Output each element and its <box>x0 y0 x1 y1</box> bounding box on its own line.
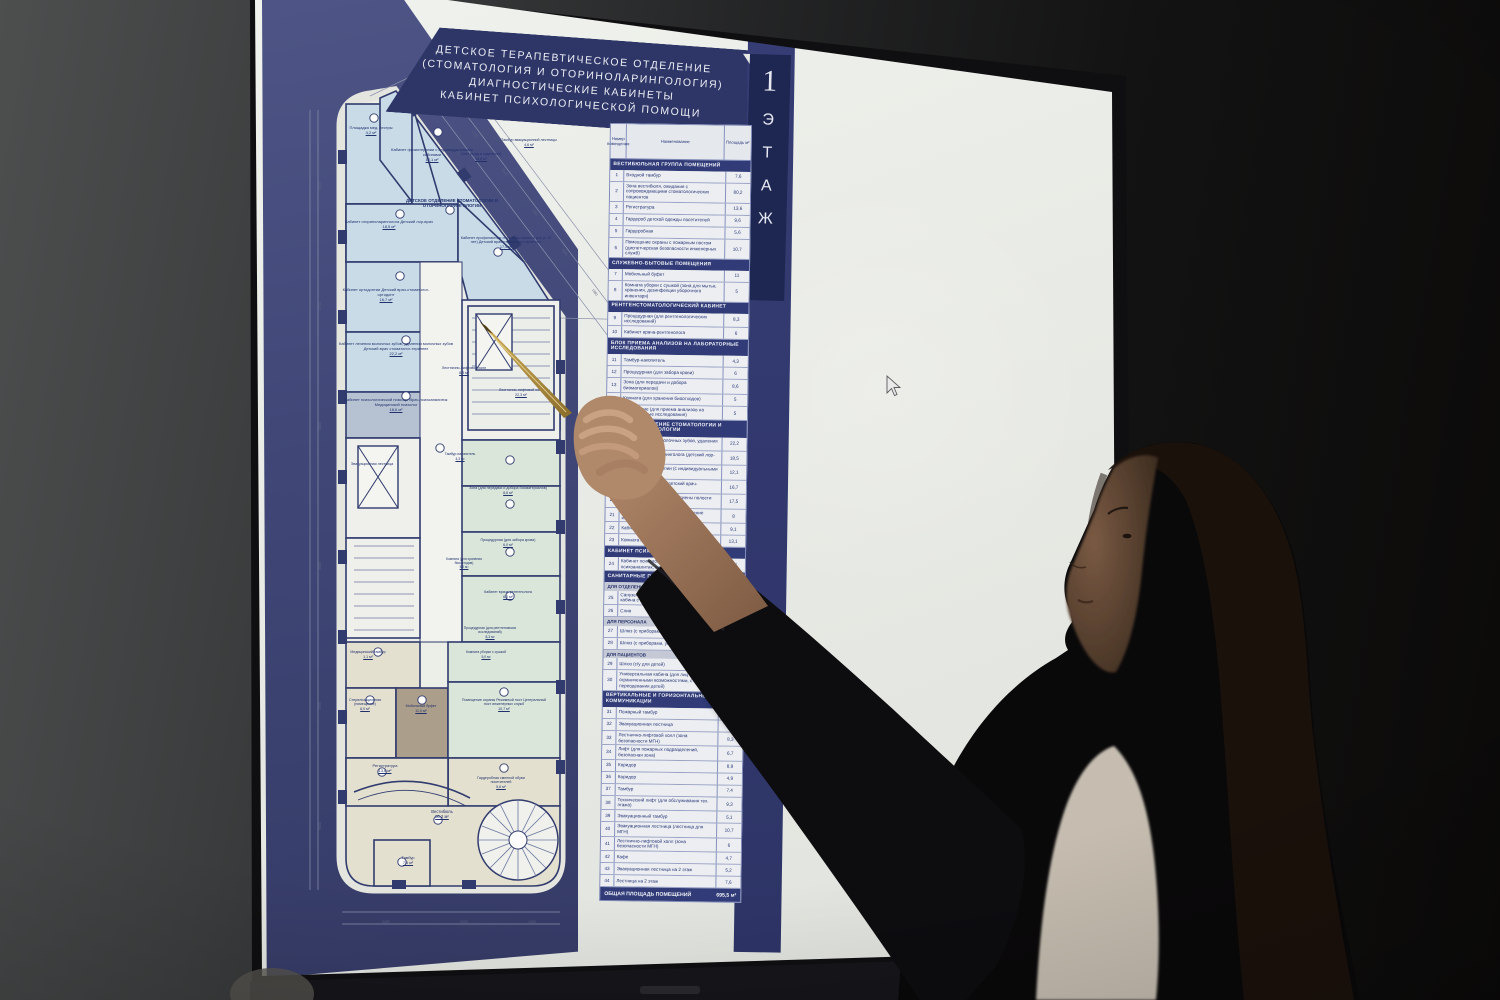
person-eye <box>1123 534 1132 539</box>
photo-of-presentation: Площадка мед. сестры4,2 м²Кабинет физиот… <box>0 0 1500 1000</box>
person-hand <box>574 396 666 500</box>
person-silhouette <box>0 0 1500 1000</box>
pointer-pen <box>480 322 572 418</box>
